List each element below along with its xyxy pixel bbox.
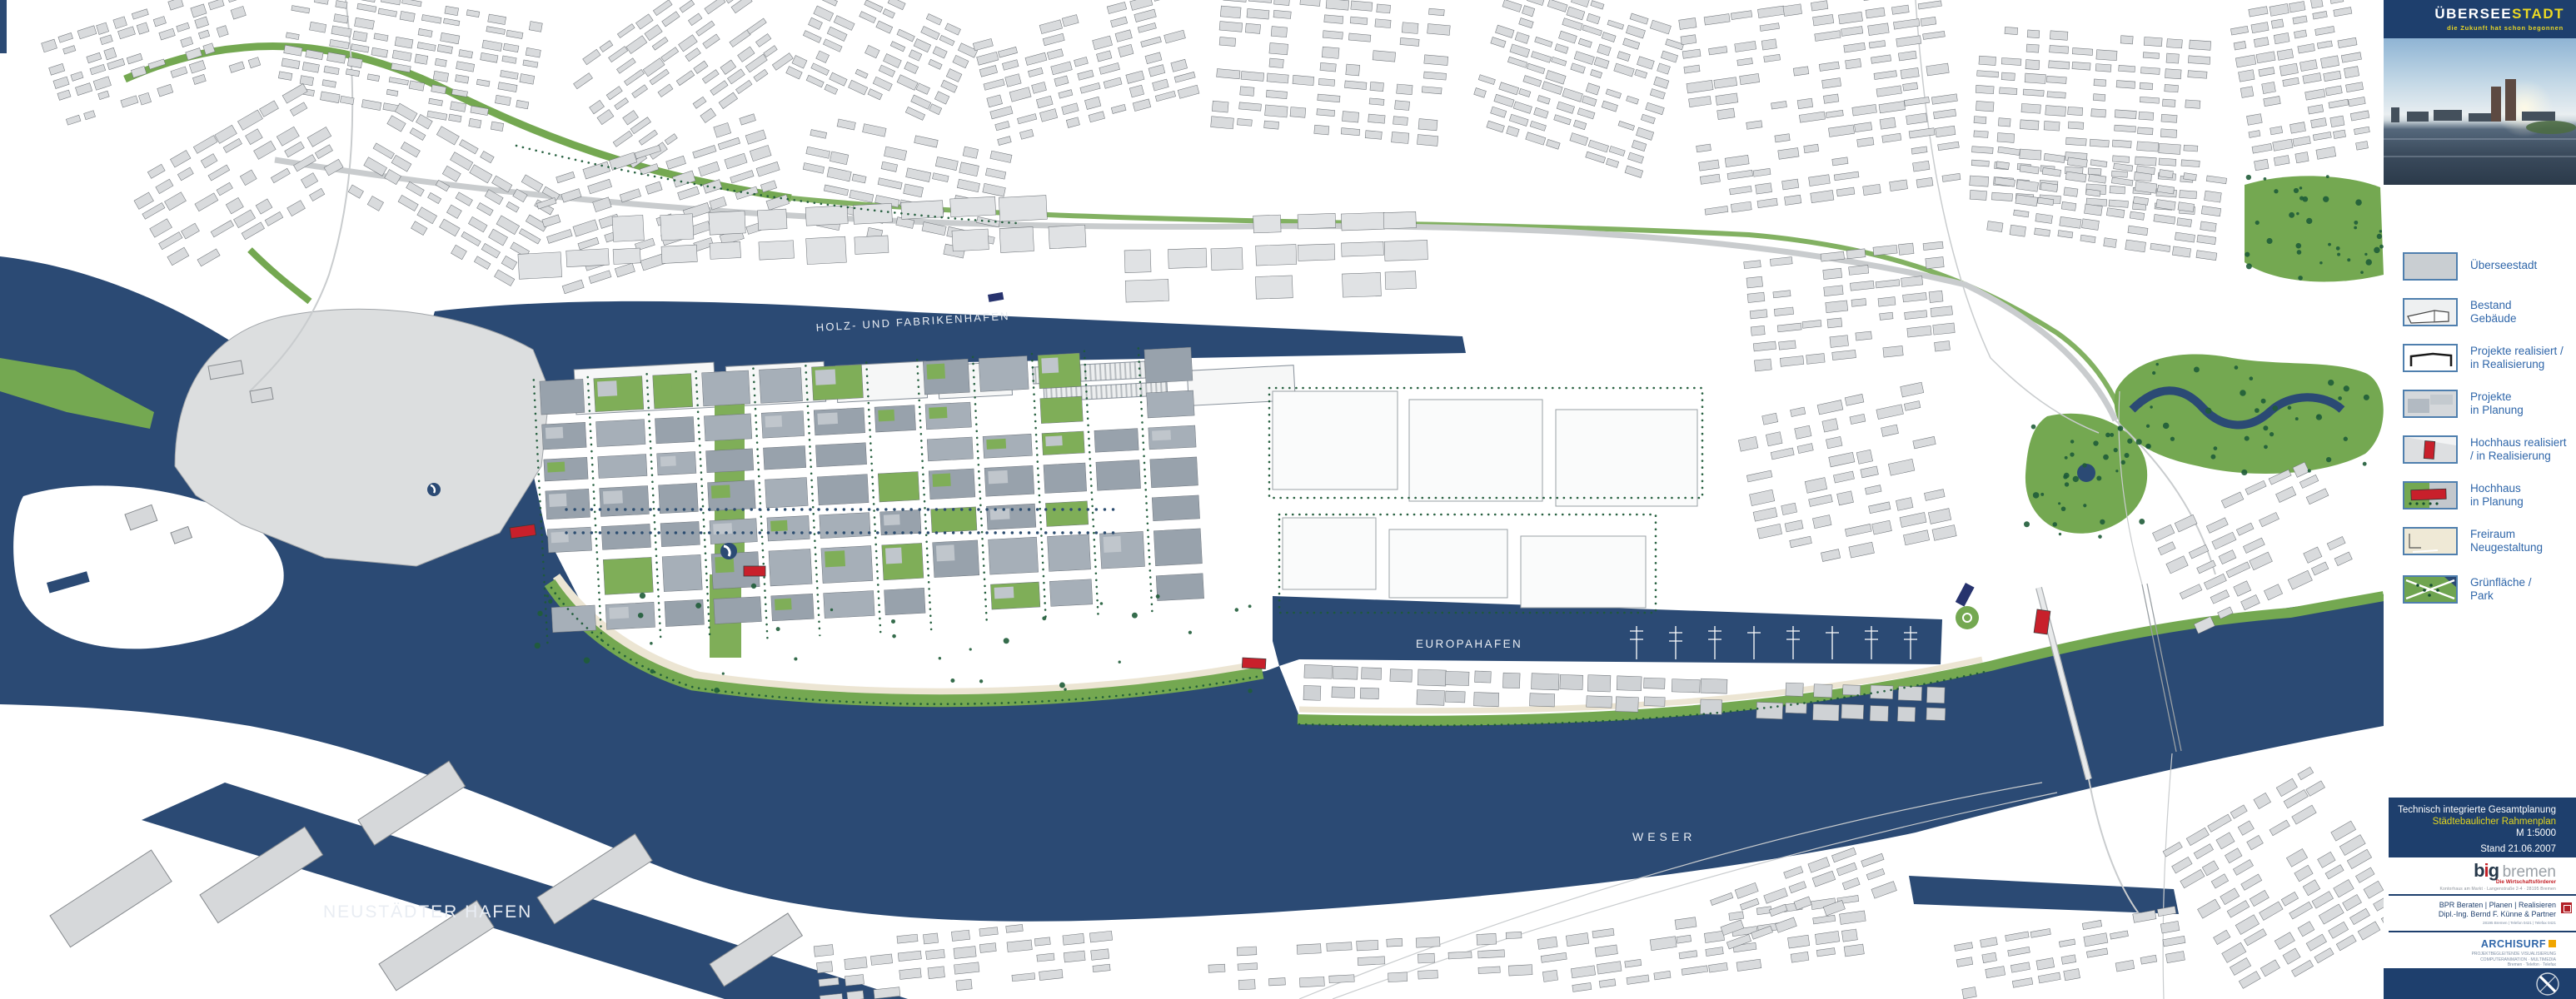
building	[556, 171, 575, 182]
tree	[1064, 688, 1066, 690]
building	[2349, 908, 2369, 924]
building	[1926, 687, 1945, 703]
building	[730, 30, 750, 47]
building	[2161, 114, 2177, 122]
building	[503, 43, 519, 52]
building	[1826, 436, 1842, 448]
building	[598, 455, 647, 479]
building	[1861, 466, 1879, 478]
building	[2166, 53, 2179, 63]
tree	[2363, 462, 2367, 466]
bpr-line-2: Dipl.-Ing. Bernd F. Künne & Partner	[2389, 910, 2556, 919]
building	[1861, 853, 1884, 867]
building	[2165, 84, 2179, 92]
tree	[2294, 188, 2299, 193]
building	[1138, 22, 1156, 32]
building	[2235, 915, 2259, 935]
building	[147, 164, 165, 178]
building	[1802, 320, 1821, 328]
tree	[2205, 408, 2212, 415]
building-cluster	[1211, 0, 1452, 147]
building	[516, 100, 529, 108]
building	[446, 205, 461, 218]
building	[2000, 87, 2017, 95]
building	[1012, 973, 1035, 982]
building	[1417, 690, 1445, 706]
building	[2305, 89, 2325, 100]
building	[2293, 137, 2311, 147]
tree	[2059, 533, 2061, 535]
tree	[2364, 395, 2369, 400]
building	[2264, 97, 2281, 107]
building	[1775, 134, 1790, 142]
building	[1868, 23, 1890, 36]
building	[477, 202, 494, 216]
building	[1546, 139, 1560, 149]
building	[2111, 171, 2127, 177]
building	[1392, 132, 1409, 143]
building	[2233, 860, 2253, 876]
building	[100, 35, 112, 45]
building	[153, 17, 166, 27]
building	[709, 211, 745, 235]
building	[1764, 54, 1781, 62]
building	[1644, 697, 1665, 707]
building	[170, 151, 191, 167]
building	[1849, 542, 1875, 558]
building-cluster	[971, 0, 1200, 147]
building	[401, 142, 420, 157]
building	[2334, 7, 2352, 17]
building	[936, 544, 955, 561]
building	[302, 62, 319, 73]
building	[1923, 241, 1943, 250]
building	[132, 9, 148, 19]
building	[2012, 978, 2033, 988]
building	[769, 549, 812, 586]
building	[1769, 904, 1787, 916]
building	[1791, 952, 1809, 962]
park-northeast	[2245, 176, 2384, 281]
building	[2089, 174, 2106, 183]
building	[346, 69, 359, 77]
building	[2026, 44, 2039, 52]
building	[1041, 357, 1059, 373]
building	[806, 236, 847, 264]
building	[933, 47, 947, 58]
building	[2112, 156, 2129, 163]
building	[1764, 888, 1788, 904]
building	[192, 74, 206, 84]
building	[2042, 167, 2060, 176]
building	[2273, 139, 2293, 151]
building	[1711, 892, 1733, 905]
building	[1681, 35, 1697, 45]
building	[2159, 158, 2176, 166]
building	[914, 38, 931, 52]
building	[191, 4, 207, 17]
building	[1714, 77, 1737, 89]
building	[2325, 86, 2342, 96]
building	[2162, 99, 2175, 107]
building	[606, 87, 622, 100]
building	[1650, 89, 1665, 99]
building	[1051, 62, 1073, 75]
building-cluster	[530, 111, 796, 296]
building	[167, 247, 189, 266]
building	[357, 3, 376, 12]
building	[696, 21, 715, 36]
building	[1666, 39, 1684, 50]
building	[1794, 897, 1811, 910]
building	[1039, 109, 1057, 122]
building	[2206, 518, 2228, 534]
building	[2115, 125, 2136, 132]
building	[1212, 101, 1228, 112]
building	[750, 145, 771, 161]
building	[2227, 901, 2250, 917]
building	[2177, 218, 2192, 227]
building	[985, 168, 1006, 179]
building	[1998, 147, 2020, 155]
building	[1602, 101, 1617, 112]
building	[1815, 31, 1841, 42]
building	[1150, 457, 1198, 488]
building	[2096, 50, 2117, 61]
building	[2251, 22, 2269, 33]
building	[1740, 73, 1760, 84]
building	[2348, 97, 2365, 106]
tree	[1004, 638, 1009, 644]
building	[1297, 944, 1321, 955]
building	[137, 22, 149, 34]
building	[2364, 881, 2384, 898]
building	[760, 181, 776, 192]
building	[371, 47, 388, 57]
building	[1267, 73, 1288, 83]
building	[1970, 190, 1986, 200]
building	[436, 127, 459, 145]
tree	[2336, 246, 2340, 251]
building	[1574, 52, 1594, 65]
building	[198, 30, 209, 39]
building	[714, 597, 761, 624]
building	[2210, 590, 2230, 604]
building	[1271, 27, 1287, 37]
building	[763, 446, 805, 470]
building	[897, 934, 918, 943]
building	[385, 169, 401, 184]
building	[1866, 7, 1885, 18]
building	[2249, 131, 2260, 138]
building	[1916, 177, 1933, 187]
building	[1594, 57, 1609, 69]
building	[1395, 101, 1410, 111]
building	[1341, 241, 1383, 256]
tree	[2156, 363, 2159, 365]
building	[1211, 248, 1243, 271]
building	[1630, 13, 1648, 24]
building	[1923, 31, 1946, 39]
building	[1324, 15, 1343, 24]
building	[1510, 44, 1530, 57]
building	[1708, 47, 1726, 55]
building	[2060, 216, 2081, 228]
building	[1153, 79, 1169, 91]
building	[1627, 975, 1649, 984]
tree	[2326, 457, 2331, 462]
building	[1269, 58, 1283, 68]
skyline-building	[2469, 113, 2494, 122]
building	[923, 933, 938, 944]
building	[1124, 250, 1151, 273]
building	[131, 66, 147, 77]
big-logo-bremen: bremen	[2503, 863, 2556, 881]
building	[2208, 814, 2232, 832]
building	[1845, 394, 1864, 405]
tree	[2355, 199, 2362, 206]
building	[2262, 82, 2276, 93]
building	[825, 550, 845, 567]
tree	[2145, 444, 2150, 449]
building	[2343, 895, 2362, 912]
building	[1587, 696, 1612, 708]
tree	[2379, 230, 2382, 232]
building	[2167, 39, 2183, 48]
building	[529, 22, 542, 32]
building	[1841, 27, 1862, 37]
building	[1274, 0, 1290, 6]
building	[1909, 128, 1935, 138]
building	[1812, 515, 1831, 529]
building	[1757, 524, 1782, 539]
building	[1360, 688, 1378, 699]
building	[2281, 892, 2298, 906]
building	[2180, 191, 2197, 199]
building	[2280, 63, 2298, 76]
building	[865, 45, 880, 57]
building	[285, 142, 305, 157]
tree	[891, 619, 895, 624]
project-blocks	[1273, 391, 1697, 608]
building	[1351, 1, 1373, 11]
tree	[2354, 226, 2357, 230]
building	[1303, 685, 1321, 700]
tree	[979, 679, 983, 683]
tree	[2272, 405, 2278, 411]
building	[217, 26, 228, 37]
building	[1850, 414, 1866, 424]
tree	[2288, 405, 2292, 410]
building	[1519, 88, 1531, 97]
harbor-inlet	[1909, 876, 2179, 914]
building	[1314, 125, 1329, 135]
building	[653, 0, 672, 16]
building	[2020, 120, 2039, 130]
building	[1495, 25, 1514, 37]
building	[904, 184, 924, 197]
building	[1475, 671, 1492, 683]
building	[1144, 347, 1193, 383]
building	[1478, 75, 1495, 85]
building	[2277, 49, 2294, 60]
building	[815, 370, 836, 385]
building	[1573, 120, 1587, 130]
building	[1901, 276, 1923, 287]
building	[1911, 147, 1927, 154]
tree	[2347, 258, 2350, 261]
building	[984, 79, 1004, 90]
building	[526, 47, 541, 57]
building	[1716, 93, 1738, 105]
building	[1591, 1, 1604, 10]
building	[998, 137, 1012, 146]
building	[817, 412, 838, 425]
building	[2201, 206, 2220, 216]
tree	[2344, 385, 2349, 391]
tree	[2170, 437, 2175, 441]
building	[1507, 126, 1520, 137]
building	[792, 56, 807, 69]
building	[1843, 685, 1861, 696]
building	[2336, 935, 2356, 951]
building	[2274, 156, 2290, 166]
building	[1541, 952, 1567, 962]
building	[2247, 835, 2264, 850]
tree	[2263, 425, 2268, 430]
building	[1817, 400, 1843, 414]
highrise-red-3	[1242, 658, 1266, 668]
building	[929, 59, 942, 69]
building	[254, 141, 277, 159]
bpr-line-1: BPR Beraten | Planen | Realisieren	[2389, 901, 2556, 910]
building	[42, 39, 57, 52]
building	[374, 33, 388, 41]
building	[830, 72, 847, 86]
waterfront-photo	[2384, 38, 2576, 185]
building	[286, 32, 299, 40]
building	[282, 58, 300, 69]
tree	[1248, 688, 1252, 693]
building	[1009, 87, 1031, 102]
building	[1991, 192, 2012, 201]
building	[456, 62, 475, 72]
building	[1346, 64, 1360, 76]
building	[417, 207, 437, 224]
tree	[2100, 519, 2105, 524]
building	[1737, 58, 1753, 66]
building	[208, 165, 230, 181]
building	[391, 155, 411, 171]
building	[2050, 31, 2068, 41]
building	[410, 128, 426, 141]
building	[1766, 432, 1782, 446]
building	[2356, 142, 2369, 151]
building	[1253, 215, 1281, 233]
building	[2196, 251, 2217, 261]
building	[2068, 122, 2084, 129]
building	[845, 957, 867, 970]
building	[1208, 964, 1225, 972]
building	[694, 61, 708, 73]
building	[1239, 102, 1262, 111]
building	[231, 6, 246, 19]
skyline-tower	[2505, 79, 2516, 121]
building	[954, 947, 976, 959]
tree	[1132, 613, 1138, 619]
building	[693, 97, 706, 108]
tree	[2127, 439, 2132, 444]
building	[1830, 335, 1849, 348]
building	[2110, 931, 2128, 939]
building	[2058, 231, 2073, 238]
tree	[2040, 493, 2044, 496]
building	[540, 379, 585, 415]
building	[2035, 228, 2050, 236]
building	[1795, 425, 1811, 439]
building	[995, 121, 1010, 130]
building	[1542, 82, 1562, 95]
building	[1509, 114, 1528, 126]
tree	[2338, 396, 2342, 400]
building	[2298, 922, 2314, 937]
building	[98, 91, 110, 100]
building	[256, 199, 272, 214]
building	[1650, 937, 1677, 951]
building	[90, 64, 106, 75]
building	[1423, 72, 1446, 80]
building	[1377, 4, 1391, 13]
building	[1901, 67, 1919, 78]
building	[1816, 948, 1835, 957]
building	[2358, 922, 2380, 940]
building	[1677, 935, 1692, 943]
building	[310, 22, 326, 32]
building	[678, 186, 700, 200]
building	[945, 23, 961, 35]
building	[315, 145, 332, 159]
building	[165, 192, 187, 211]
tree	[2052, 522, 2057, 527]
building	[1822, 419, 1838, 432]
building	[481, 52, 498, 62]
building	[451, 102, 466, 112]
building	[2120, 36, 2133, 44]
building	[387, 116, 406, 132]
building	[1774, 307, 1793, 316]
tree	[638, 613, 644, 619]
building	[1129, 85, 1144, 97]
building	[1832, 157, 1848, 166]
building	[1689, 96, 1712, 107]
building	[1606, 89, 1621, 98]
building	[1784, 867, 1803, 879]
building	[1362, 668, 1382, 680]
building	[201, 154, 217, 168]
building	[415, 54, 428, 64]
building	[334, 14, 348, 23]
building	[1935, 341, 1951, 351]
building	[617, 24, 635, 38]
tree	[2344, 437, 2348, 441]
building	[855, 236, 889, 255]
building	[2104, 238, 2117, 248]
building	[177, 167, 193, 181]
building	[2330, 116, 2344, 127]
building	[1932, 525, 1956, 541]
building	[1592, 928, 1614, 937]
building	[1318, 78, 1334, 86]
